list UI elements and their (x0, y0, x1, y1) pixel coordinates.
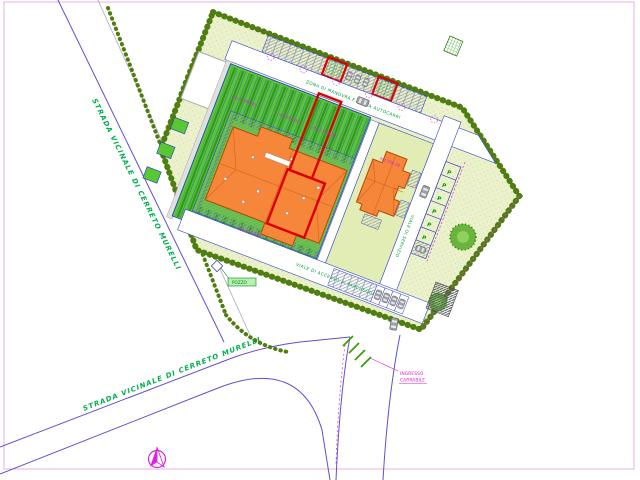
drawing-page: ZONA DI MANOVRA E SOSTA AUTOCARRI (0, 0, 640, 480)
entrance-label-line2: CARRABILE (400, 378, 425, 384)
well-marker-icon (211, 260, 222, 271)
tree-crown (457, 231, 469, 243)
exit-road (336, 335, 400, 480)
entrance-gate: INGRESSO CARRABILE (343, 336, 427, 384)
entrance-label-line1: INGRESSO (400, 371, 424, 377)
bottom-road (0, 315, 350, 480)
road-name-lower-label: STRADA VICINALE DI CERRETO MURELLI (82, 335, 263, 412)
well-label: POZZO (232, 280, 248, 285)
site-area: ZONA DI MANOVRA E SOSTA AUTOCARRI (126, 10, 542, 351)
grid-pad (444, 36, 463, 56)
north-arrow-icon (149, 447, 166, 468)
site-plan-drawing: ZONA DI MANOVRA E SOSTA AUTOCARRI (0, 0, 640, 480)
